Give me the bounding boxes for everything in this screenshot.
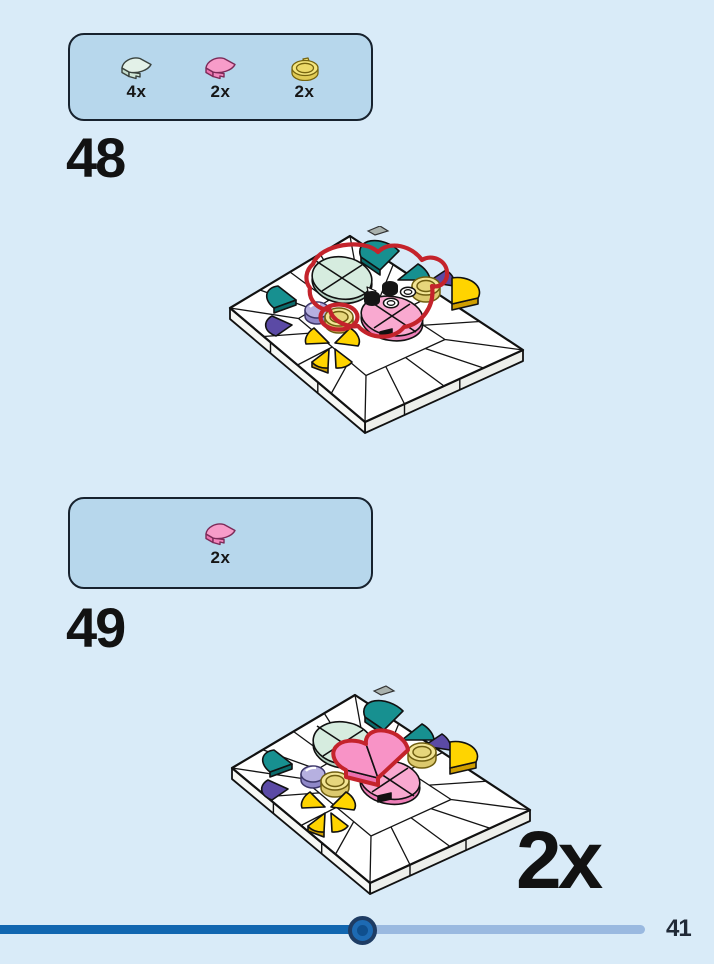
quarter-tile-aqua-icon <box>117 53 157 81</box>
part-item: 2x <box>285 53 325 102</box>
step-number-48: 48 <box>66 130 124 186</box>
parts-callout-step-48: 4x 2x 2x <box>68 33 373 121</box>
step-number-49: 49 <box>66 600 124 656</box>
quarter-tile-pink-icon <box>201 53 241 81</box>
progress-slider-track[interactable] <box>0 925 645 934</box>
part-item: 4x <box>117 53 157 102</box>
quarter-tile-pink-icon <box>201 519 241 547</box>
part-count: 2x <box>211 82 231 102</box>
instruction-page: 4x 2x 2x 48 <box>0 0 714 964</box>
tag-hanger-nub <box>374 686 394 695</box>
part-count: 4x <box>127 82 147 102</box>
step-48-build-image <box>220 226 534 436</box>
parts-callout-step-49: 2x <box>68 497 373 589</box>
tag-hanger-nub <box>368 226 388 235</box>
build-multiplier-label: 2x <box>516 820 599 902</box>
progress-slider-handle[interactable] <box>348 916 377 945</box>
page-number: 41 <box>666 915 691 943</box>
progress-slider-fill <box>0 925 356 934</box>
part-item: 2x <box>201 53 241 102</box>
step-49-build-image <box>214 684 538 898</box>
part-count: 2x <box>211 548 231 568</box>
part-item: 2x <box>201 519 241 568</box>
round-tile-yellow-icon <box>285 53 325 81</box>
part-count: 2x <box>295 82 315 102</box>
